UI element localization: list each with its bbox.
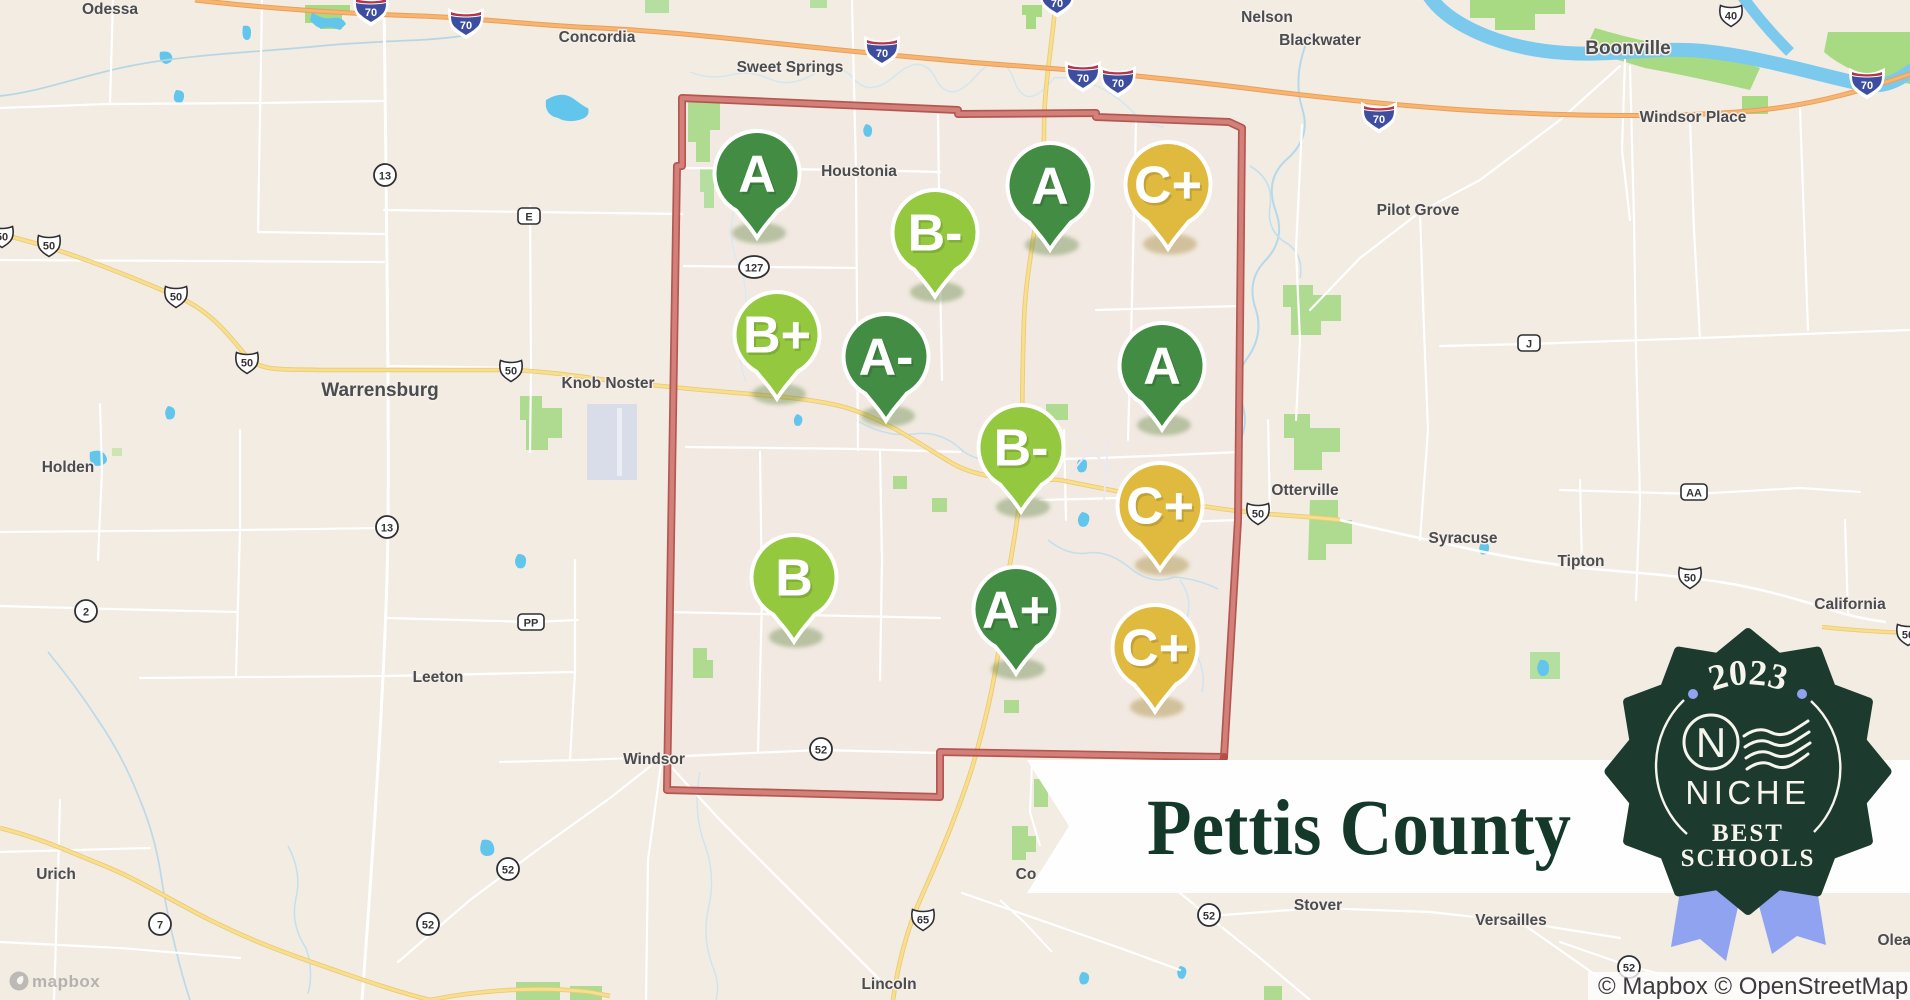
- svg-text:Leeton: Leeton: [413, 669, 464, 686]
- svg-text:Lincoln: Lincoln: [861, 976, 916, 993]
- svg-text:2: 2: [83, 607, 89, 619]
- svg-text:A: A: [1143, 338, 1181, 396]
- svg-text:© Mapbox © OpenStreetMap: © Mapbox © OpenStreetMap: [1598, 973, 1908, 1000]
- svg-text:Otterville: Otterville: [1271, 482, 1339, 499]
- svg-text:127: 127: [745, 263, 763, 275]
- svg-text:40: 40: [1725, 11, 1737, 23]
- svg-text:70: 70: [876, 48, 888, 60]
- svg-text:52: 52: [502, 865, 514, 877]
- svg-text:65: 65: [917, 915, 929, 927]
- svg-text:Nelson: Nelson: [1241, 9, 1293, 26]
- svg-text:California: California: [1814, 596, 1886, 613]
- svg-text:Holden: Holden: [42, 459, 95, 476]
- svg-text:70: 70: [1051, 0, 1063, 10]
- svg-text:50: 50: [0, 232, 8, 244]
- svg-text:70: 70: [1077, 73, 1089, 85]
- svg-text:A: A: [738, 146, 776, 204]
- svg-text:mapbox: mapbox: [32, 972, 100, 991]
- svg-text:13: 13: [381, 523, 393, 535]
- svg-text:52: 52: [1203, 911, 1215, 923]
- svg-text:50: 50: [170, 292, 182, 304]
- svg-text:B: B: [775, 550, 813, 608]
- svg-text:Windsor Place: Windsor Place: [1640, 109, 1747, 126]
- svg-text:13: 13: [379, 171, 391, 183]
- svg-text:Syracuse: Syracuse: [1429, 530, 1498, 547]
- svg-text:70: 70: [1112, 78, 1124, 90]
- svg-text:E: E: [525, 212, 532, 224]
- svg-text:C+: C+: [1134, 157, 1202, 215]
- svg-text:Versailles: Versailles: [1475, 912, 1547, 929]
- svg-text:52: 52: [422, 920, 434, 932]
- svg-text:B+: B+: [743, 307, 811, 365]
- svg-text:Concordia: Concordia: [559, 29, 636, 46]
- svg-text:Co: Co: [1016, 866, 1037, 883]
- svg-text:Odessa: Odessa: [82, 1, 138, 18]
- svg-text:50: 50: [1252, 509, 1264, 521]
- svg-text:A-: A-: [859, 329, 914, 387]
- svg-text:Pettis County: Pettis County: [1147, 785, 1571, 872]
- svg-text:50: 50: [1902, 630, 1910, 642]
- svg-text:C+: C+: [1121, 620, 1189, 678]
- svg-text:C+: C+: [1126, 478, 1194, 536]
- svg-text:N: N: [1696, 719, 1726, 766]
- svg-text:Knob Noster: Knob Noster: [562, 375, 655, 392]
- svg-text:Sweet Springs: Sweet Springs: [737, 59, 844, 76]
- svg-text:50: 50: [505, 366, 517, 378]
- svg-text:Blackwater: Blackwater: [1279, 32, 1361, 49]
- svg-text:Stover: Stover: [1294, 897, 1342, 914]
- svg-text:50: 50: [241, 358, 253, 370]
- svg-text:Windsor: Windsor: [623, 751, 685, 768]
- svg-text:J: J: [1526, 339, 1532, 351]
- svg-text:70: 70: [365, 7, 377, 19]
- svg-text:Olean: Olean: [1877, 932, 1910, 949]
- svg-text:Urich: Urich: [36, 866, 76, 883]
- svg-text:Tipton: Tipton: [1557, 553, 1604, 570]
- svg-text:B-: B-: [908, 205, 963, 263]
- svg-text:SCHOOLS: SCHOOLS: [1681, 845, 1816, 872]
- svg-text:PP: PP: [524, 618, 539, 630]
- svg-text:Boonville: Boonville: [1585, 38, 1671, 59]
- svg-text:A: A: [1031, 158, 1069, 216]
- svg-text:70: 70: [1861, 80, 1873, 92]
- svg-text:70: 70: [1373, 114, 1385, 126]
- svg-text:A+: A+: [982, 582, 1050, 640]
- svg-text:Houstonia: Houstonia: [821, 163, 897, 180]
- svg-text:70: 70: [460, 20, 472, 32]
- svg-text:52: 52: [815, 745, 827, 757]
- svg-text:BEST: BEST: [1712, 820, 1784, 847]
- svg-text:Warrensburg: Warrensburg: [321, 380, 439, 401]
- svg-text:B-: B-: [994, 420, 1049, 478]
- svg-text:Pilot Grove: Pilot Grove: [1377, 202, 1460, 219]
- svg-text:50: 50: [43, 241, 55, 253]
- svg-text:7: 7: [157, 920, 163, 932]
- svg-text:NICHE: NICHE: [1685, 774, 1810, 811]
- svg-text:AA: AA: [1686, 488, 1702, 500]
- svg-text:50: 50: [1684, 573, 1696, 585]
